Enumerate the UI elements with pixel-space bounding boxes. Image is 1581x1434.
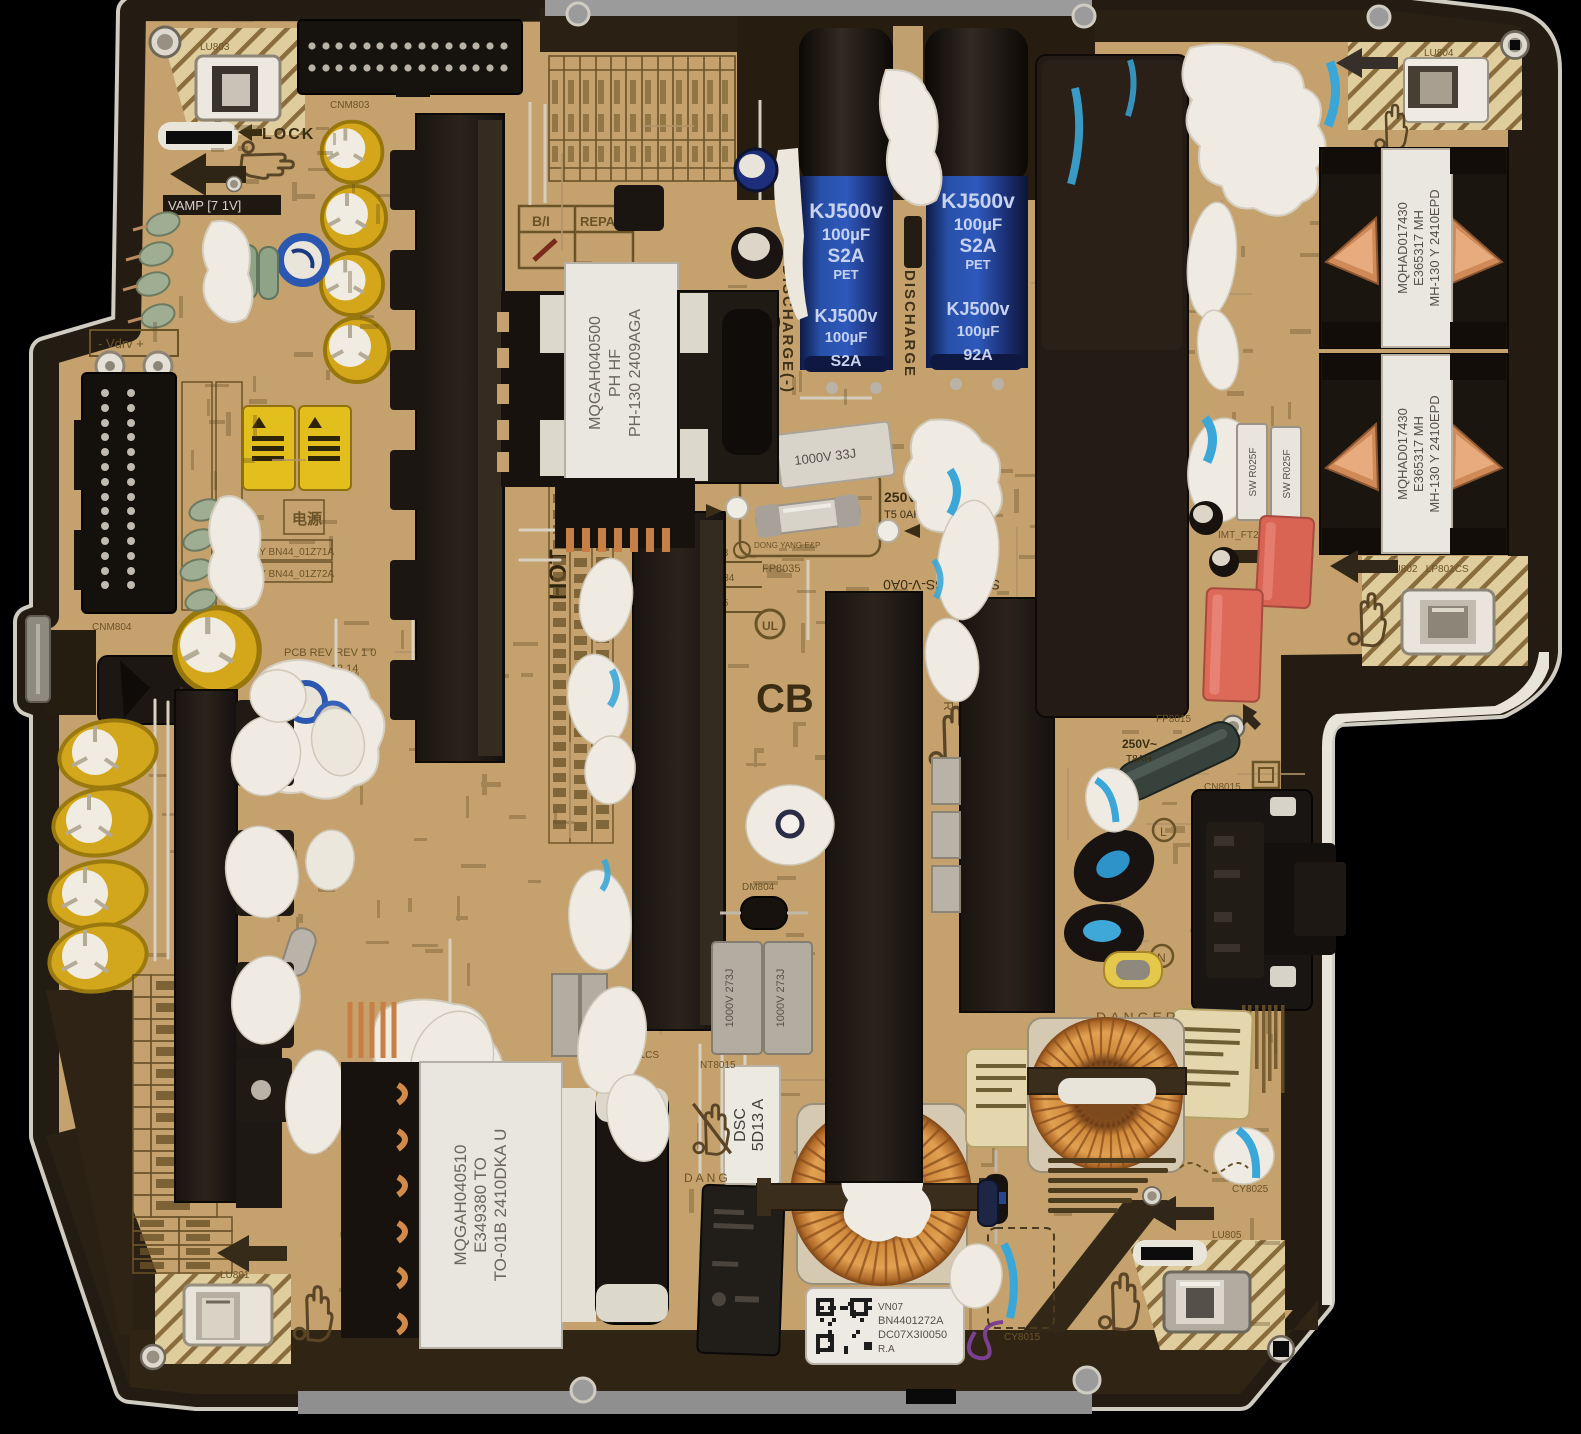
svg-text:100µF: 100µF (957, 323, 1000, 340)
svg-text:1000V 273J: 1000V 273J (775, 969, 787, 1028)
svg-text:S2A: S2A (960, 236, 997, 257)
svg-text:LU801: LU801 (220, 1270, 250, 1281)
svg-text:E365317 MH: E365317 MH (1411, 210, 1426, 286)
svg-text:CNM804: CNM804 (92, 622, 132, 633)
svg-text:5D13 A: 5D13 A (750, 1098, 767, 1151)
svg-text:BN4401272A: BN4401272A (878, 1315, 944, 1327)
svg-text:LOCK: LOCK (262, 126, 315, 143)
svg-text:S2A: S2A (830, 353, 862, 370)
svg-text:IMT_FT2: IMT_FT2 (1218, 530, 1259, 541)
svg-text:CY8025: CY8025 (1232, 1184, 1269, 1195)
svg-text:1000V 273J: 1000V 273J (724, 969, 736, 1028)
svg-text:MQHAD017430: MQHAD017430 (1395, 408, 1410, 500)
svg-text:FP8015: FP8015 (1156, 714, 1191, 725)
svg-text:MQGAH040500: MQGAH040500 (587, 316, 604, 430)
svg-text:DC07X3I0050: DC07X3I0050 (878, 1329, 947, 1341)
svg-text:R.A: R.A (878, 1344, 895, 1355)
svg-text:LU803: LU803 (200, 42, 230, 53)
svg-text:CNM803: CNM803 (330, 100, 370, 111)
svg-text:NT8015: NT8015 (700, 1060, 736, 1071)
svg-text:LU805: LU805 (1212, 1230, 1242, 1241)
svg-text:KJ500v: KJ500v (946, 299, 1009, 319)
svg-text:KJ500v: KJ500v (941, 190, 1015, 213)
svg-text:DSC: DSC (732, 1108, 749, 1142)
svg-text:E349380 TO: E349380 TO (471, 1157, 490, 1253)
svg-text:E365317 MH: E365317 MH (1411, 416, 1426, 492)
svg-text:- Vdrv +: - Vdrv + (98, 336, 144, 351)
svg-text:T8AH: T8AH (1126, 754, 1152, 765)
svg-text:250V~: 250V~ (1122, 737, 1157, 751)
svg-text:PET: PET (965, 257, 990, 272)
svg-text:VN07: VN07 (878, 1302, 903, 1313)
svg-text:DISCHARGE: DISCHARGE (901, 270, 918, 378)
svg-text:L: L (1160, 825, 1167, 839)
svg-text:DM804: DM804 (742, 882, 775, 893)
svg-text:LU802 LP801CS: LU802 LP801CS (1388, 564, 1469, 575)
svg-text:PH HF: PH HF (607, 349, 624, 397)
svg-text:PET: PET (833, 267, 858, 282)
svg-text:TO-01B 2410DKA U: TO-01B 2410DKA U (491, 1129, 510, 1282)
svg-text:SW R025F: SW R025F (1248, 448, 1259, 497)
svg-text:100µF: 100µF (825, 329, 868, 346)
svg-text:LU804: LU804 (1424, 48, 1454, 59)
svg-text:SW R025F: SW R025F (1282, 450, 1293, 499)
svg-text:MQHAD017430: MQHAD017430 (1395, 202, 1410, 294)
svg-text:VAMP [7 1V]: VAMP [7 1V] (168, 198, 241, 213)
svg-text:KJ500v: KJ500v (814, 306, 877, 326)
svg-text:MH-130 Y 2410EPD: MH-130 Y 2410EPD (1427, 189, 1442, 306)
svg-text:PH-130 2409AGA: PH-130 2409AGA (627, 309, 644, 437)
svg-text:UL: UL (762, 619, 778, 633)
svg-text:MQGAH040510: MQGAH040510 (451, 1145, 470, 1266)
svg-text:100µF: 100µF (954, 215, 1003, 234)
svg-text:MH-130 Y 2410EPD: MH-130 Y 2410EPD (1427, 395, 1442, 512)
svg-text:100µF: 100µF (822, 225, 871, 244)
svg-text:CY8015: CY8015 (1004, 1332, 1041, 1343)
svg-text:S2A: S2A (828, 246, 865, 267)
svg-text:DANG: DANG (684, 1171, 731, 1185)
svg-text:KJ500v: KJ500v (809, 200, 883, 223)
svg-text:CB: CB (756, 677, 814, 721)
svg-text:B/I: B/I (532, 213, 550, 229)
svg-text:92A: 92A (963, 347, 993, 364)
